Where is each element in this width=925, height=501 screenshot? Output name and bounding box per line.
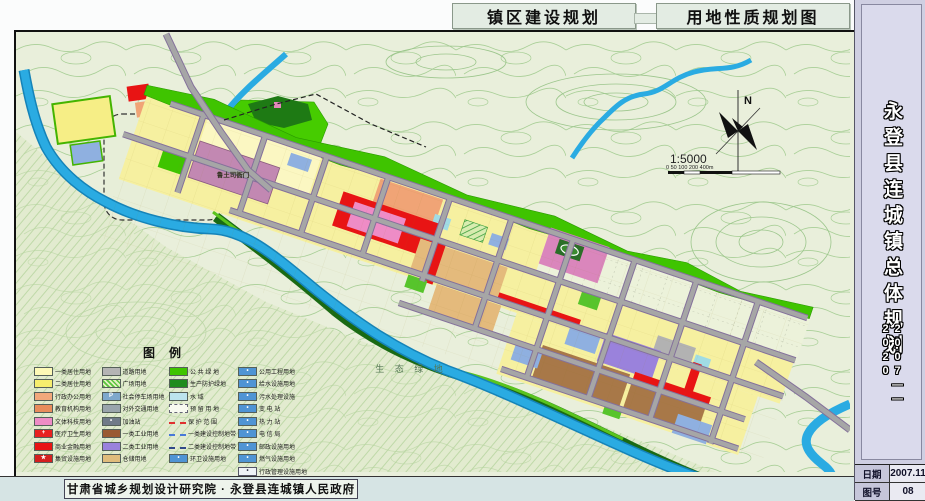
legend-item: 保 护 范 围 <box>169 415 235 428</box>
legend: 图例 一类居住用地 二类居住用地 行政办公用地 <box>34 344 304 478</box>
sidebar-title: 永登县连城镇总体规划 <box>878 101 905 361</box>
legend-column-1: 一类居住用地 二类居住用地 行政办公用地 教育机构用地 文体科技 <box>34 365 99 478</box>
legend-swatch <box>34 417 53 426</box>
legend-item: 广场用地 <box>102 378 167 391</box>
legend-item-label: 预 留 用 地 <box>190 404 219 413</box>
legend-swatch-symbol <box>35 443 52 450</box>
legend-swatch-symbol <box>103 405 120 412</box>
legend-swatch-symbol: • <box>239 418 256 425</box>
legend-column-3: 公 共 绿 地 生产防护绿地 水 域 预 留 用 地 保 <box>169 365 235 478</box>
legend-swatch-symbol: • <box>239 405 256 412</box>
legend-swatch <box>169 379 188 388</box>
legend-item: 公 共 绿 地 <box>169 365 235 378</box>
legend-item-label: 行政管理设施用地 <box>259 467 307 476</box>
legend-item-label: 医疗卫生用地 <box>55 429 91 438</box>
legend-item-label: 生产防护绿地 <box>190 379 226 388</box>
legend-item: 文体科技用地 <box>34 415 99 428</box>
legend-item: 一类工业用地 <box>102 428 167 441</box>
title-connector <box>634 13 658 24</box>
legend-swatch-symbol <box>35 368 52 375</box>
legend-swatch-symbol <box>35 393 52 400</box>
legend-item: • 热 力 站 <box>238 415 304 428</box>
legend-swatch-symbol <box>170 405 187 412</box>
legend-item-label: 教育机构用地 <box>55 404 91 413</box>
page: 镇区建设规划 用地性质规划图 <box>0 0 925 500</box>
legend-swatch <box>169 404 188 413</box>
legend-item-label: 社会停车场用地 <box>123 392 165 401</box>
legend-swatch-symbol: + <box>35 430 52 437</box>
legend-item: • 燃气设施用地 <box>238 453 304 466</box>
legend-item: 行政办公用地 <box>34 390 99 403</box>
legend-item: 仓储用地 <box>102 453 167 466</box>
title-right-label: 用地性质规划图 <box>686 4 819 28</box>
legend-swatch-symbol <box>103 443 120 450</box>
legend-item-label: 给水设施用地 <box>259 379 295 388</box>
legend-swatch: + <box>34 429 53 438</box>
legend-item: 二类工业用地 <box>102 440 167 453</box>
legend-item: • 环卫设施用地 <box>169 453 235 466</box>
scale-text: 1:5000 <box>670 152 707 166</box>
legend-item-label: 加油站 <box>123 417 141 426</box>
legend-swatch <box>102 404 121 413</box>
legend-swatch: ★ <box>34 454 53 463</box>
legend-swatch-symbol: • <box>103 418 120 425</box>
legend-item-label: 燃气设施用地 <box>259 454 295 463</box>
legend-swatch-symbol <box>103 430 120 437</box>
legend-item-label: 水 域 <box>190 392 204 401</box>
legend-item: 预 留 用 地 <box>169 403 235 416</box>
legend-item-label: 公 共 绿 地 <box>190 367 219 376</box>
legend-swatch <box>34 367 53 376</box>
legend-swatch <box>169 447 186 449</box>
legend-swatch <box>102 454 121 463</box>
legend-item: • 加油站 <box>102 415 167 428</box>
legend-item-label: 保 护 范 围 <box>188 417 217 426</box>
legend-item-label: 行政办公用地 <box>55 392 91 401</box>
legend-item-label: 二类工业用地 <box>123 442 159 451</box>
sheet-number-value: 08 <box>890 483 925 500</box>
legend-swatch-symbol: • <box>170 455 187 462</box>
legend-swatch-symbol: • <box>239 443 256 450</box>
sheet-number-label: 图号 <box>855 483 890 500</box>
legend-item: 二类建设控制地带 <box>169 440 235 453</box>
legend-item: • 污水处理设施 <box>238 390 304 403</box>
legend-swatch-symbol: • <box>239 455 256 462</box>
legend-item-label: 热 力 站 <box>259 417 280 426</box>
legend-item-label: 二类建设控制地带 <box>188 442 236 451</box>
legend-swatch-symbol: • <box>239 430 256 437</box>
legend-item: ★ 集贸设施用地 <box>34 453 99 466</box>
legend-item: 商业金融用地 <box>34 440 99 453</box>
legend-item-label: 文体科技用地 <box>55 417 91 426</box>
legend-swatch-symbol <box>103 380 120 387</box>
legend-swatch: • <box>238 454 257 463</box>
legend-item: • 邮政设施用地 <box>238 440 304 453</box>
legend-item-label: 一类工业用地 <box>123 429 159 438</box>
legend-swatch <box>169 392 188 401</box>
legend-item: 二类居住用地 <box>34 378 99 391</box>
footer-credit: 甘肃省城乡规划设计研究院 · 永登县连城镇人民政府 <box>64 479 358 499</box>
legend-item-label: 商业金融用地 <box>55 442 91 451</box>
map-frame: 鲁土司衙门 生 态 绿 地 N 1:5000 0 50 100 200 400m <box>14 30 856 478</box>
legend-item-label: 仓储用地 <box>123 454 147 463</box>
sidebar-panel: 永登县连城镇总体规划 2007——2020 <box>861 4 922 460</box>
legend-item-label: 对外交通用地 <box>123 404 159 413</box>
legend-item-label: 一类居住用地 <box>55 367 91 376</box>
legend-swatch-symbol <box>170 380 187 387</box>
legend-item-label: 环卫设施用地 <box>190 454 226 463</box>
map-label-eco-green: 生 态 绿 地 <box>375 363 447 374</box>
legend-swatch: • <box>238 417 257 426</box>
legend-item-label: 二类居住用地 <box>55 379 91 388</box>
title-left: 镇区建设规划 <box>452 3 636 29</box>
legend-swatch-symbol <box>170 368 187 375</box>
legend-item: 教育机构用地 <box>34 403 99 416</box>
legend-item: • 公用工程用地 <box>238 365 304 378</box>
legend-swatch <box>102 429 121 438</box>
legend-item-label: 污水处理设施 <box>259 392 295 401</box>
legend-swatch: • <box>102 417 121 426</box>
legend-swatch <box>102 379 121 388</box>
date-value: 2007.11 <box>890 465 925 482</box>
legend-swatch <box>169 434 186 436</box>
sidebar-years: 2007——2020 <box>880 323 904 459</box>
legend-swatch: • <box>169 454 188 463</box>
legend-column-2: 道路用地 广场用地 P 社会停车场用地 对外交通用地 • 加油站 <box>102 365 167 478</box>
legend-item: P 社会停车场用地 <box>102 390 167 403</box>
legend-swatch: • <box>238 367 257 376</box>
legend-item: 一类居住用地 <box>34 365 99 378</box>
legend-swatch-symbol: ★ <box>35 455 52 462</box>
legend-swatch-symbol: P <box>103 393 120 400</box>
legend-title: 图例 <box>34 344 304 361</box>
legend-swatch <box>34 392 53 401</box>
legend-swatch: • <box>238 467 257 476</box>
legend-swatch-symbol <box>35 418 52 425</box>
legend-item: + 医疗卫生用地 <box>34 428 99 441</box>
footer: 甘肃省城乡规划设计研究院 · 永登县连城镇人民政府 <box>0 476 854 501</box>
legend-swatch <box>34 379 53 388</box>
legend-swatch-symbol: • <box>239 380 256 387</box>
map-label-historic-site: 鲁土司衙门 <box>216 170 250 179</box>
legend-item-label: 集贸设施用地 <box>55 454 91 463</box>
north-label: N <box>744 95 752 107</box>
legend-item: • 电 信 局 <box>238 428 304 441</box>
legend-item-label: 公用工程用地 <box>259 367 295 376</box>
legend-swatch <box>34 404 53 413</box>
legend-item-label: 一类建设控制地带 <box>188 429 236 438</box>
legend-item-label: 邮政设施用地 <box>259 442 295 451</box>
legend-item: • 变 电 站 <box>238 403 304 416</box>
date-label: 日期 <box>855 465 890 482</box>
legend-swatch-symbol: • <box>239 393 256 400</box>
sheet-number-row: 图号 08 <box>855 483 925 501</box>
legend-column-4: • 公用工程用地 • 给水设施用地 • 污水处理设施 • 变 电 站 • <box>238 365 304 478</box>
legend-item-label: 电 信 局 <box>259 429 280 438</box>
legend-swatch-symbol <box>35 380 52 387</box>
legend-swatch-symbol <box>35 405 52 412</box>
scale-ticks: 0 50 100 200 400m <box>666 165 714 171</box>
legend-swatch-symbol: • <box>239 368 256 375</box>
legend-swatch <box>102 442 121 451</box>
legend-swatch: • <box>238 442 257 451</box>
legend-swatch <box>169 422 186 424</box>
legend-item: 水 域 <box>169 390 235 403</box>
legend-swatch <box>169 367 188 376</box>
legend-item: • 给水设施用地 <box>238 378 304 391</box>
legend-swatch-symbol <box>103 368 120 375</box>
legend-swatch <box>102 367 121 376</box>
legend-swatch: P <box>102 392 121 401</box>
legend-swatch-symbol <box>103 455 120 462</box>
legend-item: 一类建设控制地带 <box>169 428 235 441</box>
title-left-label: 镇区建设规划 <box>487 4 601 28</box>
legend-swatch: • <box>238 392 257 401</box>
title-right: 用地性质规划图 <box>656 3 850 29</box>
legend-swatch-symbol: • <box>239 468 256 475</box>
legend-swatch: • <box>238 429 257 438</box>
legend-swatch: • <box>238 379 257 388</box>
legend-swatch <box>34 442 53 451</box>
sidebar: 永登县连城镇总体规划 2007——2020 日期 2007.11 图号 08 <box>854 0 925 500</box>
legend-item: 道路用地 <box>102 365 167 378</box>
sheet-info-table: 日期 2007.11 图号 08 <box>855 464 925 500</box>
legend-item: 生产防护绿地 <box>169 378 235 391</box>
legend-item-label: 广场用地 <box>123 379 147 388</box>
date-row: 日期 2007.11 <box>855 465 925 483</box>
legend-swatch-symbol <box>170 393 187 400</box>
legend-item: 对外交通用地 <box>102 403 167 416</box>
legend-swatch: • <box>238 404 257 413</box>
legend-item-label: 道路用地 <box>123 367 147 376</box>
legend-item-label: 变 电 站 <box>259 404 280 413</box>
